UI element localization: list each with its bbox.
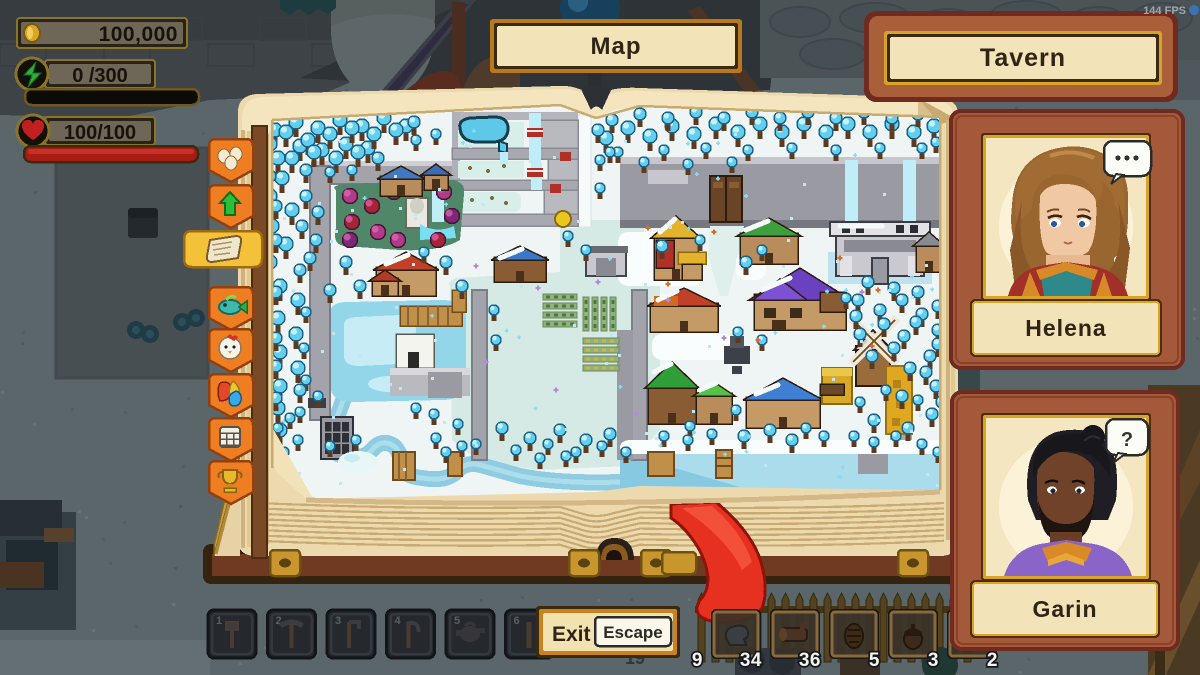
svg-text:6: 6: [514, 615, 520, 627]
svg-text:Tavern: Tavern: [980, 44, 1066, 72]
svg-text:Escape: Escape: [603, 623, 663, 642]
svg-text:34: 34: [740, 650, 762, 671]
svg-text:1: 1: [216, 615, 222, 627]
svg-text:Garin: Garin: [1032, 596, 1097, 622]
svg-text:5: 5: [454, 615, 460, 627]
svg-text:4: 4: [395, 615, 402, 627]
svg-text:Map: Map: [591, 33, 642, 60]
svg-text:36: 36: [799, 650, 821, 671]
svg-text:5: 5: [869, 650, 880, 671]
svg-text:0 /300: 0 /300: [72, 65, 128, 87]
svg-text:2: 2: [987, 650, 998, 671]
svg-text:9: 9: [692, 650, 703, 671]
svg-text:100,000: 100,000: [99, 23, 178, 46]
svg-text:144 FPS: 144 FPS: [1143, 5, 1186, 17]
svg-text:3: 3: [335, 615, 341, 627]
svg-text:?: ?: [1121, 429, 1133, 451]
svg-text:3: 3: [928, 650, 939, 671]
svg-text:Exit: Exit: [552, 623, 591, 646]
svg-text:Helena: Helena: [1025, 315, 1106, 341]
svg-text:100/100: 100/100: [64, 122, 136, 144]
